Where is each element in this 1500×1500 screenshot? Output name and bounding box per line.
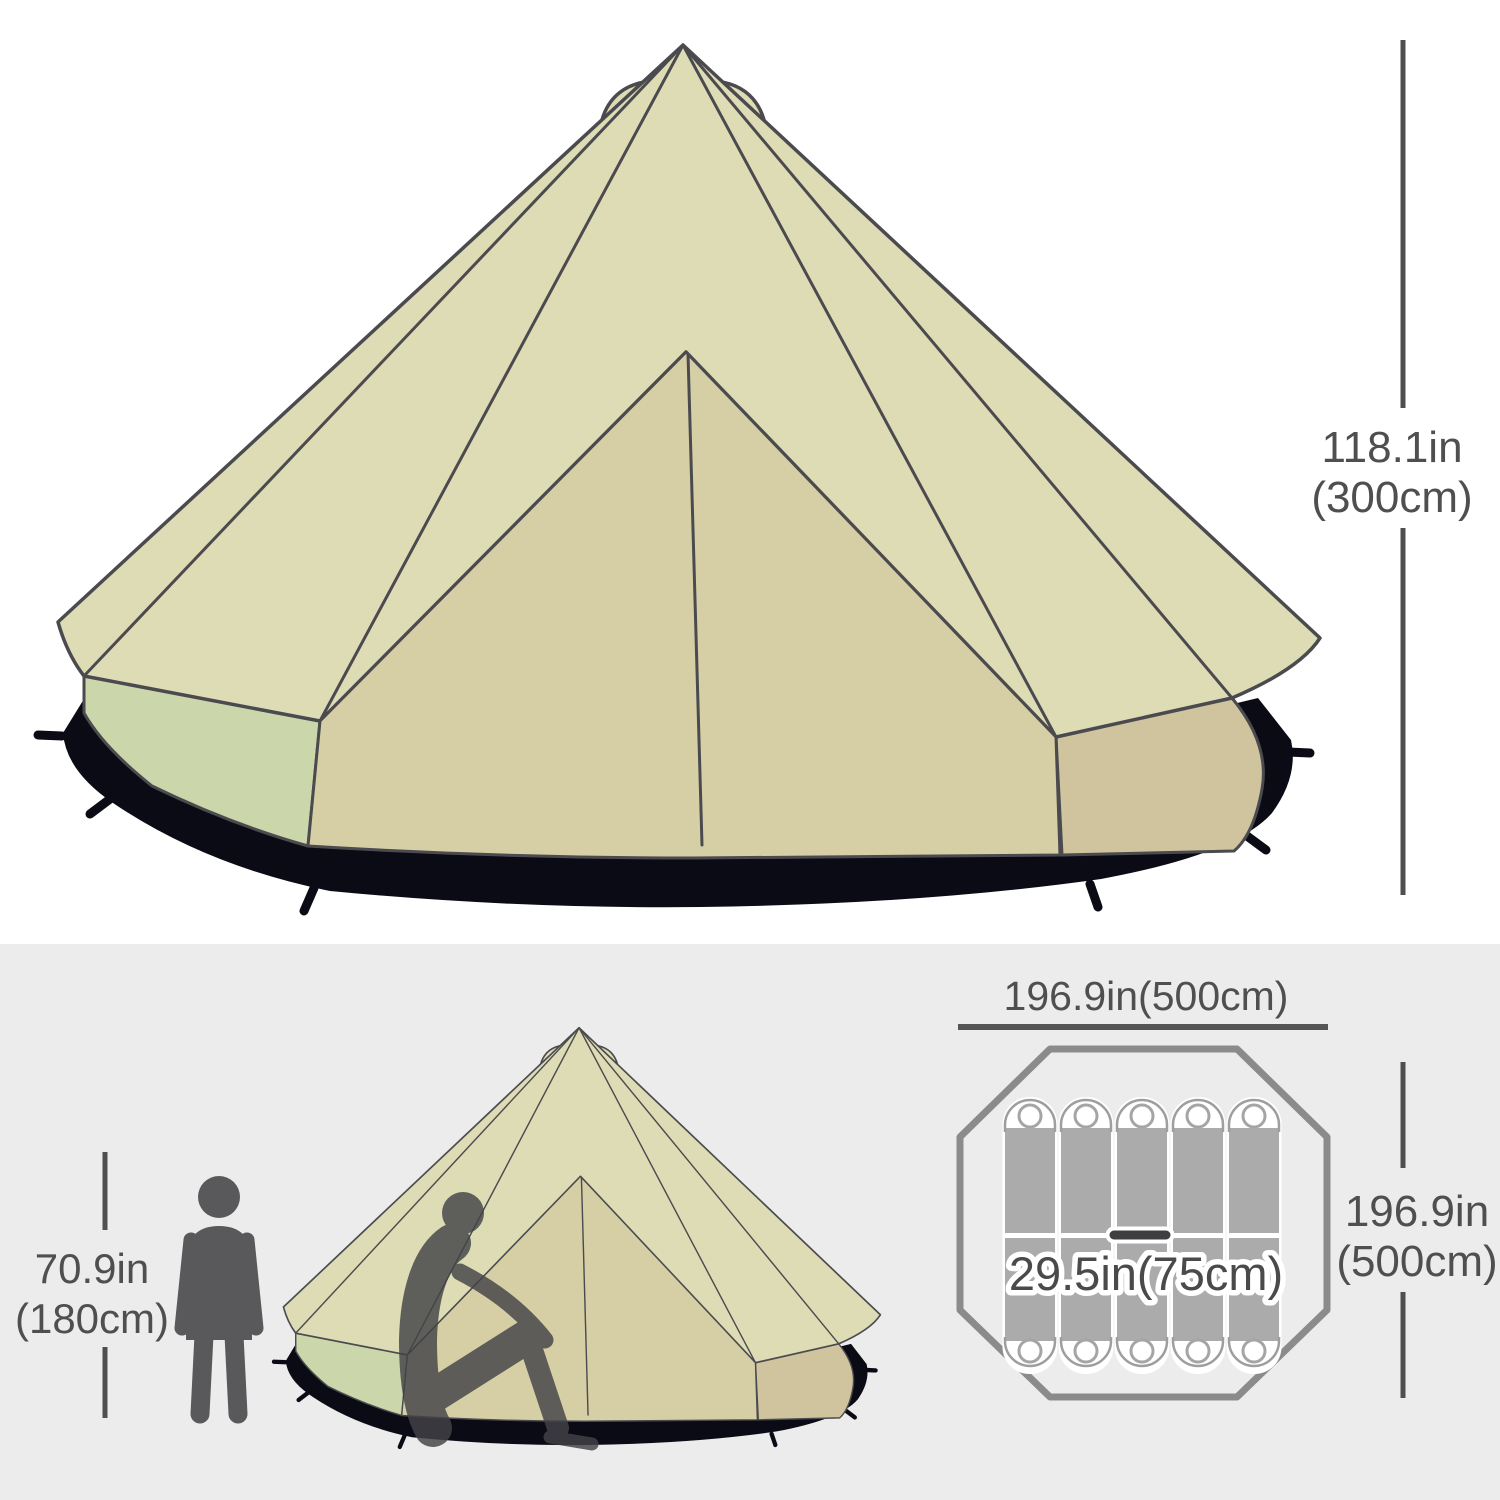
sleeping-pad-column bbox=[1003, 1097, 1058, 1374]
height-label-in: 118.1in bbox=[1321, 423, 1462, 472]
person-height-label-in: 70.9in bbox=[35, 1245, 149, 1292]
height-label-cm: (300cm) bbox=[1311, 473, 1472, 522]
pad-width-label: 29.5in(75cm) bbox=[1009, 1247, 1283, 1300]
width-label: 196.9in(500cm) bbox=[1004, 973, 1289, 1019]
depth-label-in: 196.9in bbox=[1345, 1187, 1489, 1236]
sleeping-pad-column bbox=[1171, 1097, 1226, 1374]
product-dimensions-image: 118.1in (300cm) 70.9in (180cm) bbox=[0, 0, 1500, 1500]
depth-label-cm: (500cm) bbox=[1336, 1237, 1497, 1286]
sleeping-pad-column bbox=[1059, 1097, 1114, 1374]
dimension-diagram-svg: 118.1in (300cm) 70.9in (180cm) bbox=[0, 0, 1500, 1500]
person-height-label-cm: (180cm) bbox=[15, 1295, 169, 1342]
sleeping-pad-column bbox=[1227, 1097, 1282, 1374]
